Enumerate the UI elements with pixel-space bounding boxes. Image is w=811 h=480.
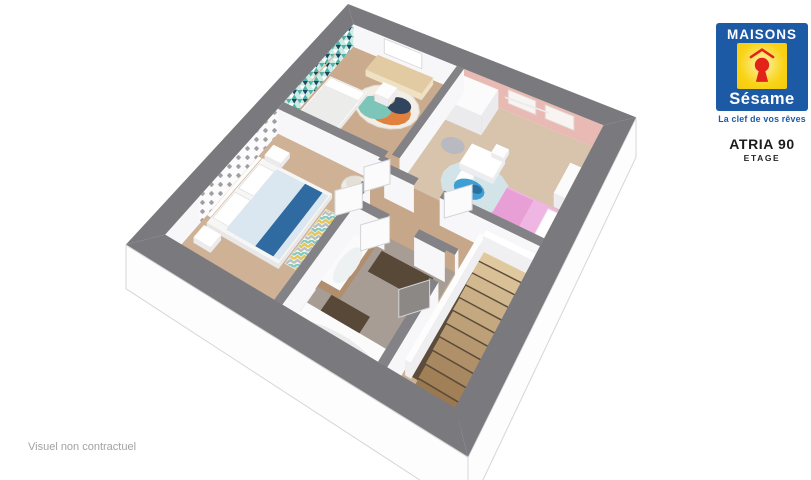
brand-emblem — [737, 43, 787, 89]
brand-block: MAISONS Sésame La clef de vos rêves ATRI… — [716, 23, 808, 163]
page: MAISONS Sésame La clef de vos rêves ATRI… — [0, 0, 811, 480]
brand-name-bottom: Sésame — [729, 91, 794, 108]
floorplan-3d — [0, 0, 811, 480]
brand-tagline: La clef de vos rêves — [716, 114, 808, 124]
brand-logo: MAISONS Sésame — [716, 23, 808, 111]
plan-model-title: ATRIA 90 — [716, 136, 808, 152]
disclaimer-text: Visuel non contractuel — [28, 441, 136, 453]
keyhole-icon — [746, 47, 778, 85]
brand-name-top: MAISONS — [727, 28, 797, 42]
plan-level-label: ETAGE — [716, 153, 808, 163]
